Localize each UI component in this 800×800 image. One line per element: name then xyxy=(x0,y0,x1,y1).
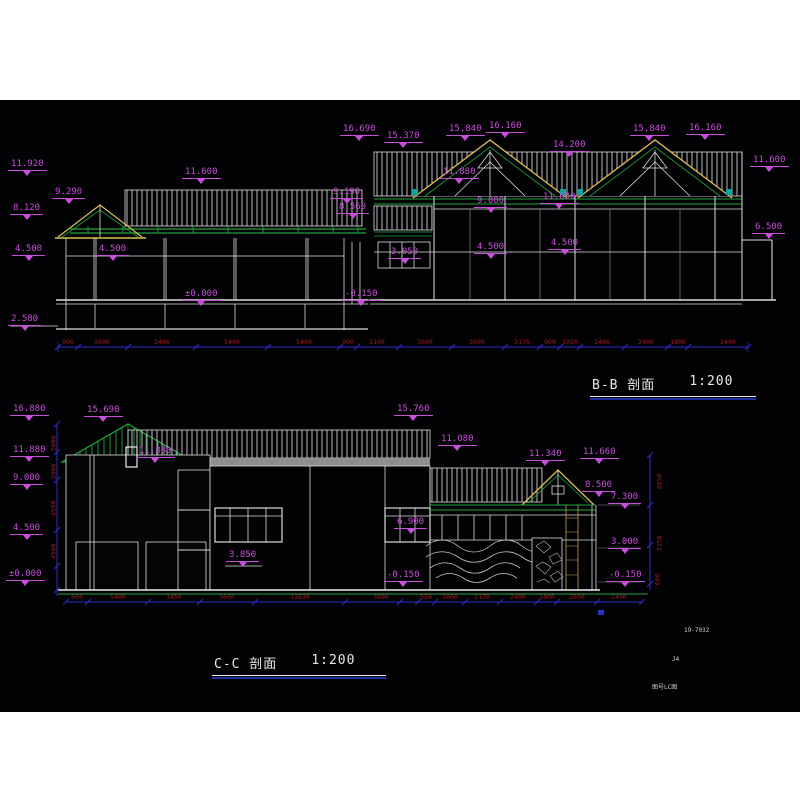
elevation-label: 16.880 xyxy=(10,405,49,421)
dimension-value: 900 xyxy=(62,339,74,346)
level-triangle-icon xyxy=(621,582,629,587)
elevation-value: 15.840 xyxy=(630,125,669,136)
dimension-value: 5400 xyxy=(224,339,240,346)
dimension-value-vertical: 2800 xyxy=(51,463,58,479)
elevation-value: 11.660 xyxy=(580,448,619,459)
elevation-label: 11.600 xyxy=(750,156,789,172)
elevation-label: 4.500 xyxy=(12,245,45,261)
level-triangle-icon xyxy=(561,250,569,255)
elevation-value: 4.500 xyxy=(96,245,129,256)
dimension-value: 2400 xyxy=(510,594,526,601)
level-triangle-icon xyxy=(23,535,31,540)
level-triangle-icon xyxy=(541,461,549,466)
dimension-value: 900 xyxy=(544,339,556,346)
elevation-label: 3.000 xyxy=(608,538,641,554)
elevation-value: 15.840 xyxy=(446,125,485,136)
elevation-value: 8.560 xyxy=(336,203,369,214)
dimension-value-vertical: 5000 xyxy=(51,435,58,451)
level-triangle-icon xyxy=(25,256,33,261)
section-title-bb-name: B-B 剖面 xyxy=(592,374,655,393)
level-triangle-icon xyxy=(23,485,31,490)
elevation-label: 3.050 xyxy=(388,248,421,264)
level-triangle-icon xyxy=(399,582,407,587)
elevation-label: -0.150 xyxy=(384,571,423,587)
section-title-bb: B-B 剖面 1:200 xyxy=(590,374,756,397)
elevation-label: 11.340 xyxy=(526,450,565,466)
level-triangle-icon xyxy=(401,259,409,264)
elevation-label: 15.840 xyxy=(630,125,669,141)
elevation-value: 6.500 xyxy=(752,223,785,234)
level-triangle-icon xyxy=(701,135,709,140)
dimension-value-vertical: 8650 xyxy=(657,473,664,489)
level-triangle-icon xyxy=(355,136,363,141)
elevation-value: 4.500 xyxy=(12,245,45,256)
elevation-label: 11.600 xyxy=(540,193,579,209)
elevation-value: 15.760 xyxy=(394,405,433,416)
dimension-value-vertical: 600 xyxy=(655,573,662,585)
level-triangle-icon xyxy=(501,133,509,138)
elevation-value: 9.190 xyxy=(330,188,363,199)
section-title-cc-scale: 1:200 xyxy=(311,653,355,672)
dimension-value: 2600 xyxy=(569,594,585,601)
dimension-value: 3450 xyxy=(166,594,182,601)
level-triangle-icon xyxy=(407,529,415,534)
level-triangle-icon xyxy=(765,167,773,172)
elevation-value: 16.160 xyxy=(486,122,525,133)
elevation-label: 2.580 xyxy=(8,315,41,331)
level-triangle-icon xyxy=(151,458,159,463)
elevation-label: 16.160 xyxy=(686,124,725,140)
level-triangle-icon xyxy=(65,199,73,204)
elevation-value: 11.340 xyxy=(526,450,565,461)
dimension-value: 3600 xyxy=(219,594,235,601)
level-triangle-icon xyxy=(409,416,417,421)
elevation-label: 15.690 xyxy=(84,406,123,422)
level-triangle-icon xyxy=(461,136,469,141)
level-triangle-icon xyxy=(487,208,495,213)
dimension-value: 3600 xyxy=(373,594,389,601)
elevation-value: -0.150 xyxy=(606,571,645,582)
elevation-value: -0.150 xyxy=(342,290,381,301)
elevation-value: 16.880 xyxy=(10,405,49,416)
level-triangle-icon xyxy=(25,457,33,462)
elevation-label: ±0.000 xyxy=(6,570,45,586)
elevation-value: 11.880 xyxy=(136,447,175,458)
elevation-value: 15.370 xyxy=(384,132,423,143)
dimension-value: 3600 xyxy=(469,339,485,346)
elevation-value: 4.500 xyxy=(10,524,43,535)
elevation-value: 16.160 xyxy=(686,124,725,135)
level-triangle-icon xyxy=(99,417,107,422)
level-triangle-icon xyxy=(357,301,365,306)
elevation-value: 11.600 xyxy=(182,168,221,179)
level-triangle-icon xyxy=(197,179,205,184)
elevation-value: 2.580 xyxy=(8,315,41,326)
elevation-label: 6.500 xyxy=(752,223,785,239)
dimension-value: 2400 xyxy=(594,339,610,346)
dimension-value-vertical: 4500 xyxy=(51,543,58,559)
dimension-value: 1800 xyxy=(670,339,686,346)
elevation-value: 15.690 xyxy=(84,406,123,417)
elevation-value: 4.500 xyxy=(548,239,581,250)
dimension-value: 1020 xyxy=(562,339,578,346)
level-triangle-icon xyxy=(349,214,357,219)
level-triangle-icon xyxy=(595,459,603,464)
elevation-label: -0.150 xyxy=(606,571,645,587)
section-title-cc-name: C-C 剖面 xyxy=(214,653,277,672)
dimension-value: 600 xyxy=(71,594,83,601)
elevation-label: 15.840 xyxy=(446,125,485,141)
section-title-bb-scale: 1:200 xyxy=(689,374,733,393)
elevation-value: 9.080 xyxy=(474,197,507,208)
elevation-label: 7.300 xyxy=(608,493,641,509)
elevation-label: -0.150 xyxy=(342,290,381,306)
dimension-value: 900 xyxy=(342,339,354,346)
elevation-label: 6.900 xyxy=(394,518,427,534)
dimension-value: 13630 xyxy=(290,594,310,601)
dimension-value-vertical: 3150 xyxy=(657,535,664,551)
level-triangle-icon xyxy=(487,254,495,259)
dimension-value: 550 xyxy=(420,594,432,601)
elevation-value: 11.600 xyxy=(750,156,789,167)
elevation-label: 11.080 xyxy=(438,435,477,451)
level-triangle-icon xyxy=(25,416,33,421)
elevation-value: 6.900 xyxy=(394,518,427,529)
elevation-label: 4.500 xyxy=(96,245,129,261)
elevation-label: 16.690 xyxy=(340,125,379,141)
title-underline-cc xyxy=(212,677,386,679)
dimension-value: 5400 xyxy=(154,339,170,346)
elevation-label: 8.120 xyxy=(10,204,43,220)
level-triangle-icon xyxy=(765,234,773,239)
dimension-value: 3600 xyxy=(94,339,110,346)
level-triangle-icon xyxy=(455,179,463,184)
elevation-value: 4.500 xyxy=(474,243,507,254)
dimension-value: 2400 xyxy=(611,594,627,601)
elevation-label: 11.660 xyxy=(580,448,619,464)
dimension-value: 1600 xyxy=(442,594,458,601)
dimension-value: 2400 xyxy=(638,339,654,346)
elevation-label: 9.290 xyxy=(52,188,85,204)
elevation-value: 14.200 xyxy=(550,141,589,152)
elevation-label: ±0.000 xyxy=(182,290,221,306)
dimension-value: 2400 xyxy=(720,339,736,346)
elevation-value: 3.000 xyxy=(608,538,641,549)
dimension-value: 3600 xyxy=(417,339,433,346)
elevation-label: 11.600 xyxy=(182,168,221,184)
elevation-label: 9.080 xyxy=(474,197,507,213)
sheet-note-text: 图号LC图 xyxy=(652,685,677,691)
elevation-value: -0.150 xyxy=(384,571,423,582)
elevation-value: 7.300 xyxy=(608,493,641,504)
dimension-value: 1800 xyxy=(539,594,555,601)
section-bb-right-building xyxy=(370,140,776,304)
level-triangle-icon xyxy=(23,171,31,176)
elevation-label: 14.200 xyxy=(550,141,589,157)
level-triangle-icon xyxy=(23,215,31,220)
level-triangle-icon xyxy=(565,152,573,157)
elevation-label: 11.920 xyxy=(8,160,47,176)
level-triangle-icon xyxy=(595,492,603,497)
elevation-label: 9.080 xyxy=(10,474,43,490)
elevation-label: 8.560 xyxy=(336,203,369,219)
level-triangle-icon xyxy=(109,256,117,261)
title-underline-bb xyxy=(590,398,756,400)
dimension-value: 5400 xyxy=(296,339,312,346)
elevation-value: 11.880 xyxy=(10,446,49,457)
level-triangle-icon xyxy=(621,504,629,509)
level-triangle-icon xyxy=(399,143,407,148)
level-triangle-icon xyxy=(645,136,653,141)
section-title-cc: C-C 剖面 1:200 xyxy=(212,653,386,676)
elevation-label: 11.880 xyxy=(440,168,479,184)
cad-sheet: B-B 剖面 1:200 C-C 剖面 1:200 11.9209.2908.1… xyxy=(0,0,800,800)
elevation-label: 3.850 xyxy=(226,551,259,567)
elevation-value: 11.080 xyxy=(438,435,477,446)
sheet-note-text: J4 xyxy=(672,657,679,663)
elevation-label: 4.500 xyxy=(548,239,581,255)
dimension-value: 2100 xyxy=(369,339,385,346)
dimension-value-vertical: 4580 xyxy=(51,500,58,516)
elevation-value: 8.120 xyxy=(10,204,43,215)
level-triangle-icon xyxy=(555,204,563,209)
elevation-label: 4.500 xyxy=(474,243,507,259)
elevation-label: 16.160 xyxy=(486,122,525,138)
elevation-value: 11.600 xyxy=(540,193,579,204)
dimension-value: 3170 xyxy=(514,339,530,346)
elevation-label: 11.880 xyxy=(136,447,175,463)
elevation-value: 9.080 xyxy=(10,474,43,485)
elevation-value: 16.690 xyxy=(340,125,379,136)
level-triangle-icon xyxy=(621,549,629,554)
elevation-value: 11.920 xyxy=(8,160,47,171)
level-triangle-icon xyxy=(239,562,247,567)
elevation-label: 4.500 xyxy=(10,524,43,540)
elevation-label: 15.370 xyxy=(384,132,423,148)
level-triangle-icon xyxy=(197,301,205,306)
dimension-value: 3170 xyxy=(474,594,490,601)
elevation-value: 8.500 xyxy=(582,481,615,492)
elevation-value: ±0.000 xyxy=(6,570,45,581)
elevation-value: 3.050 xyxy=(388,248,421,259)
elevation-value: 9.290 xyxy=(52,188,85,199)
sheet-note-text: 19-7032 xyxy=(684,628,709,634)
elevation-value: ±0.000 xyxy=(182,290,221,301)
elevation-label: 15.760 xyxy=(394,405,433,421)
section-bb-left-building xyxy=(10,190,372,330)
elevation-value: 3.850 xyxy=(226,551,259,562)
level-triangle-icon xyxy=(21,581,29,586)
dimension-value: 5400 xyxy=(110,594,126,601)
level-triangle-icon xyxy=(21,326,29,331)
level-triangle-icon xyxy=(453,446,461,451)
section-linework xyxy=(0,0,800,800)
elevation-label: 11.880 xyxy=(10,446,49,462)
elevation-value: 11.880 xyxy=(440,168,479,179)
